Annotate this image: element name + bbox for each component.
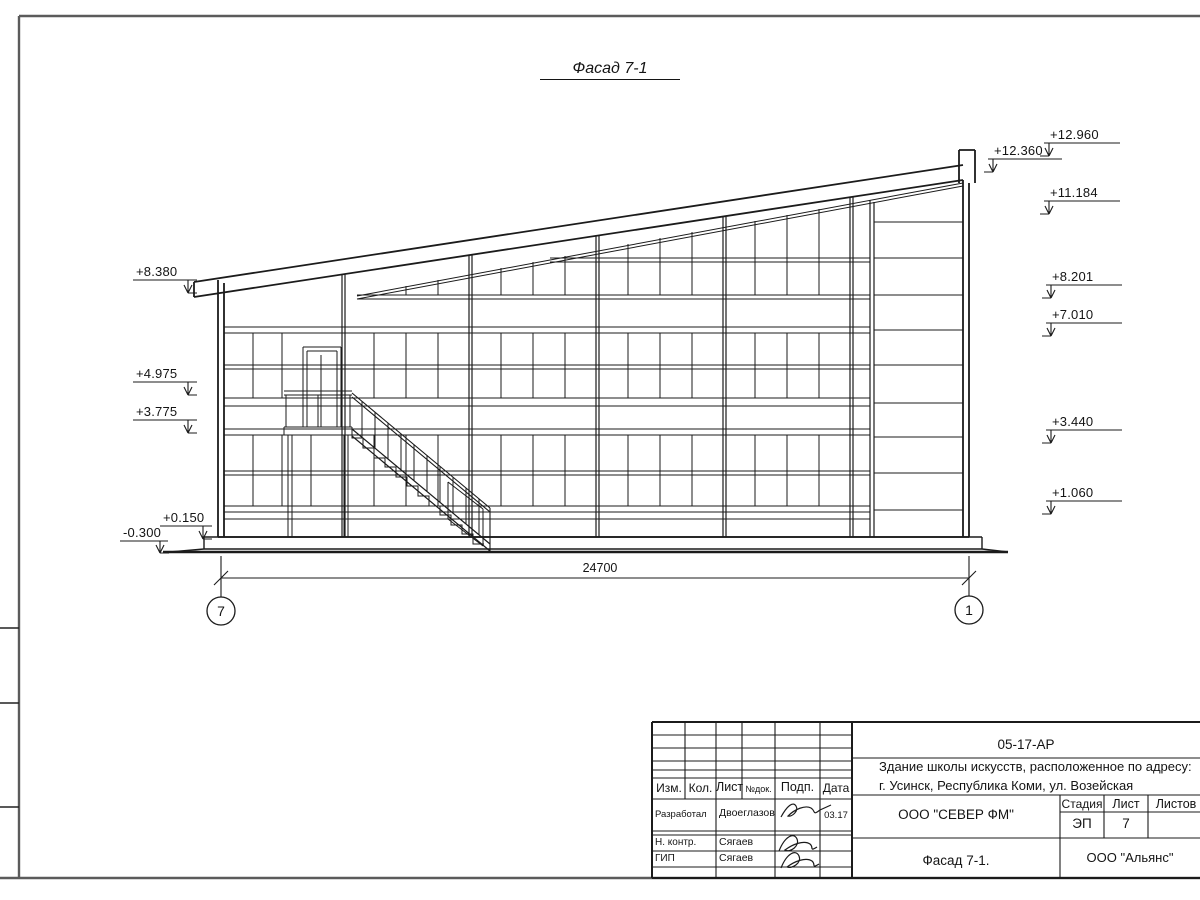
col-header-kol: Кол. — [686, 781, 715, 795]
elevation-mark-right-4: +7.010 — [1052, 307, 1093, 322]
col-header-list: Лист — [716, 780, 742, 794]
project-address-line2: г. Усинск, Республика Коми, ул. Возейска… — [879, 778, 1133, 793]
axis-label-1: 1 — [955, 602, 983, 618]
row-developer-role: Разработал — [655, 809, 707, 820]
elevation-mark-left-4: -0.300 — [123, 525, 161, 540]
drawing-title: Фасад 7-1 — [540, 60, 680, 80]
plinth — [170, 537, 1008, 552]
stage-value: ЭП — [1060, 816, 1104, 831]
col-header-izm: Изм. — [653, 781, 685, 795]
stage-label: Стадия — [1060, 797, 1104, 811]
signature-ncontrol — [779, 836, 817, 851]
row-developer-date: 03.17 — [820, 810, 852, 821]
elevation-mark-left-0: +8.380 — [136, 264, 177, 279]
row-developer-name: Двоеглазов — [719, 807, 775, 819]
col-header-ndok: №док. — [743, 784, 774, 794]
panel-bay-joints — [874, 222, 963, 510]
elevation-mark-right-2: +11.184 — [1050, 185, 1098, 200]
row-gip-name: Сягаев — [719, 852, 753, 864]
elevation-mark-right-5: +3.440 — [1052, 414, 1093, 429]
elevation-mark-left-3: +0.150 — [163, 510, 204, 525]
contractor-name: ООО "Альянс" — [1060, 850, 1200, 865]
exit-door — [303, 347, 341, 427]
sheet-label: Лист — [1104, 797, 1148, 811]
view-title: Фасад 7-1. — [854, 853, 1058, 868]
elevation-mark-right-6: +1.060 — [1052, 485, 1093, 500]
elevation-mark-right-1: +12.360 — [994, 143, 1043, 158]
project-address-line1: Здание школы искусств, расположенное по … — [879, 759, 1192, 774]
drawing-sheet: Фасад 7-1 +12.960 +12.360 +11.184 +8.201… — [0, 0, 1200, 900]
col-header-data: Дата — [821, 781, 851, 795]
col-header-podp: Подп. — [776, 780, 819, 794]
elevation-mark-right-3: +8.201 — [1052, 269, 1093, 284]
elevation-mark-right-0: +12.960 — [1050, 127, 1099, 142]
sheets-label: Листов — [1148, 797, 1200, 811]
row-ncontrol-role: Н. контр. — [655, 837, 696, 848]
doc-code: 05-17-АР — [900, 737, 1152, 752]
dimension-total: 24700 — [566, 561, 634, 575]
stair-balusters — [362, 401, 479, 535]
sheet-number: 7 — [1104, 816, 1148, 831]
row-gip-role: ГИП — [655, 853, 675, 864]
axis-label-7: 7 — [207, 603, 235, 619]
elevation-mark-left-2: +3.775 — [136, 404, 177, 419]
org-name: ООО "СЕВЕР ФМ" — [854, 807, 1058, 822]
frame-filing-ticks — [0, 628, 19, 807]
signature-gip — [781, 853, 819, 868]
elevation-mark-left-1: +4.975 — [136, 366, 177, 381]
row-ncontrol-name: Сягаев — [719, 836, 753, 848]
